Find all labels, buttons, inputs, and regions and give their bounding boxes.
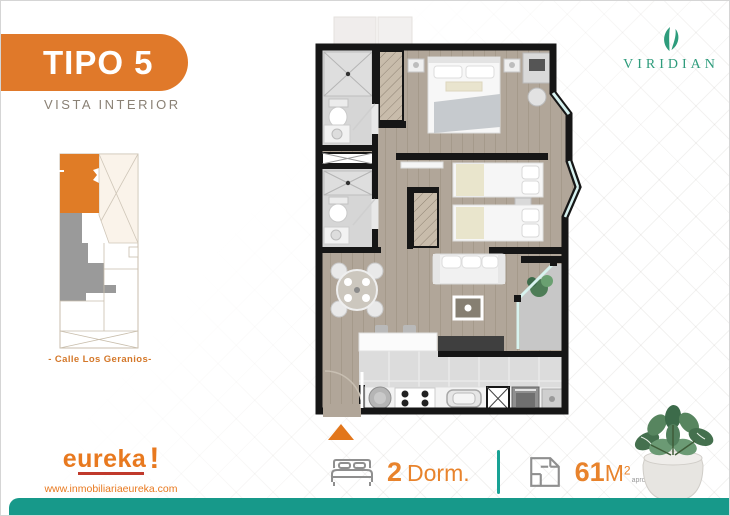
duct-shaft — [319, 145, 376, 169]
potted-plant-image — [617, 397, 729, 509]
floor-plan — [301, 13, 593, 445]
brand-name: VIRIDIAN — [619, 57, 723, 73]
bedrooms-value: 2 — [387, 457, 402, 487]
bedrooms-stat: 2Dorm. — [329, 456, 470, 488]
area-value: 61 — [575, 457, 605, 487]
agency-logo-text: eureka — [63, 445, 147, 474]
bedrooms-text: 2Dorm. — [387, 457, 470, 488]
type-badge-title: TIPO 5 — [43, 44, 154, 82]
stats-divider — [497, 450, 500, 494]
unit-stats: 2Dorm. 61M2aprox — [329, 447, 649, 497]
bedroom-divider-wall — [396, 153, 548, 160]
brochure-page: TIPO 5 VISTA INTERIOR VIRIDIAN - Calle L… — [0, 0, 730, 516]
wall-shelf — [401, 162, 443, 168]
plant-leaves — [632, 404, 716, 457]
site-location-diagram — [57, 151, 141, 351]
footer-accent-bar — [9, 498, 729, 515]
view-subtitle: VISTA INTERIOR — [44, 97, 181, 112]
agency-logo: eureka ! — [63, 445, 160, 474]
bed-icon — [329, 456, 375, 488]
leaf-icon — [659, 25, 683, 53]
agency-logo-block: eureka ! www.inmobiliariaeureka.com — [29, 445, 193, 495]
agency-website: www.inmobiliariaeureka.com — [29, 483, 193, 495]
ghost-neighbor-unit — [334, 17, 412, 44]
brand-logo: VIRIDIAN — [619, 25, 723, 73]
type-badge: TIPO 5 — [1, 34, 188, 91]
highlighted-unit — [60, 154, 99, 213]
bedrooms-label: Dorm. — [407, 460, 470, 486]
entrance-triangle-marker — [328, 424, 354, 440]
plant-pot — [643, 451, 703, 501]
agency-logo-exclamation: ! — [149, 445, 159, 472]
floorplan-icon — [527, 454, 563, 490]
bathroom-1 — [322, 50, 374, 145]
street-caption: - Calle Los Geranios- — [41, 354, 159, 365]
